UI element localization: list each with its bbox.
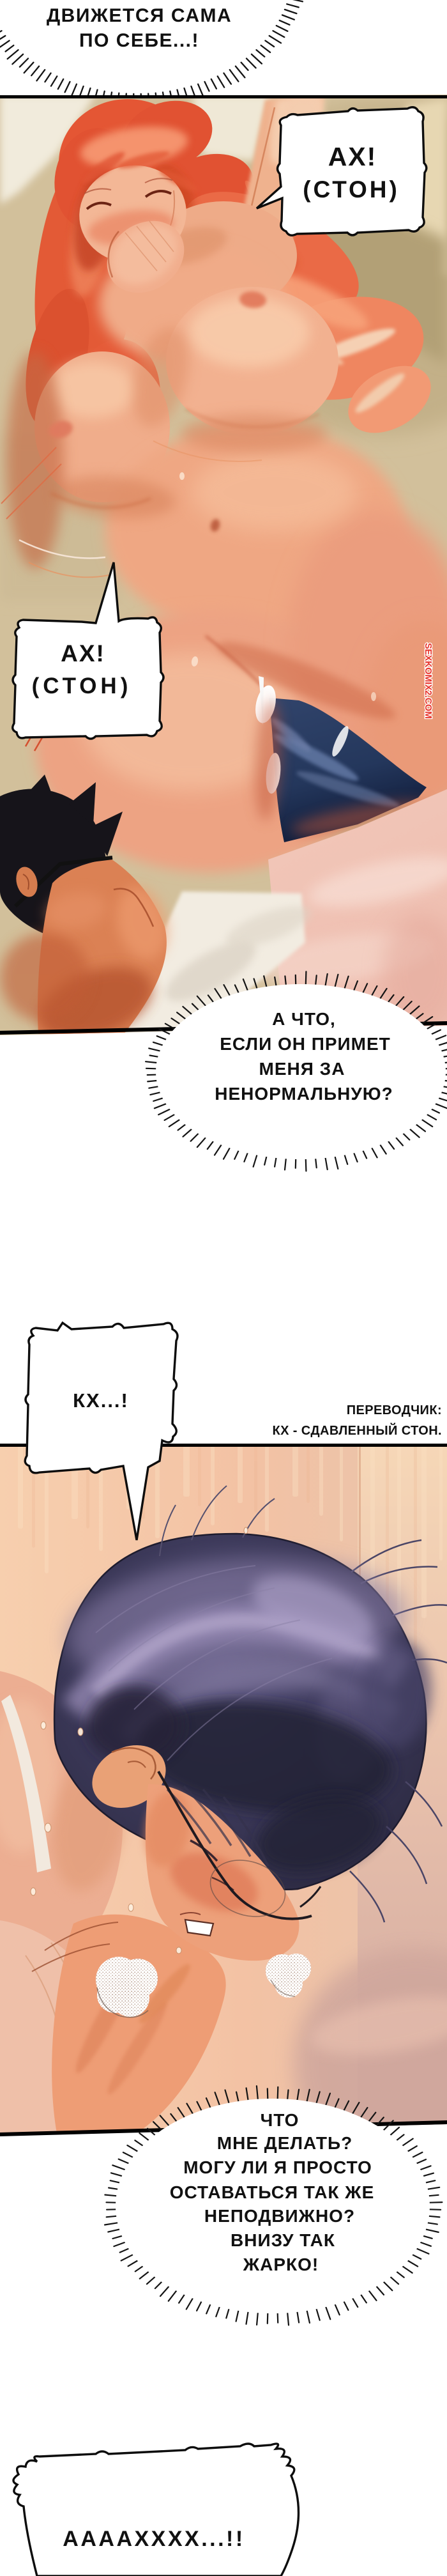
svg-text:(СТОН): (СТОН): [32, 674, 132, 698]
svg-text:А ЧТО,: А ЧТО,: [272, 1009, 336, 1029]
svg-text:НЕНОРМАЛЬНУЮ?: НЕНОРМАЛЬНУЮ?: [215, 1084, 393, 1104]
svg-text:ПО СЕБЕ...!: ПО СЕБЕ...!: [79, 30, 199, 51]
svg-text:КХ...!: КХ...!: [73, 1389, 129, 1412]
svg-text:МЕНЯ ЗА: МЕНЯ ЗА: [259, 1059, 345, 1079]
svg-text:АХ!: АХ!: [61, 640, 105, 667]
svg-text:ВНИЗУ ТАК: ВНИЗУ ТАК: [231, 2230, 335, 2250]
svg-text:SEXKOMIX2.COM: SEXKOMIX2.COM: [423, 643, 433, 719]
svg-text:(СТОН): (СТОН): [303, 176, 400, 203]
svg-text:АААAXXXX...!!: АААAXXXX...!!: [63, 2527, 245, 2551]
svg-text:КХ - СДАВЛЕННЫЙ СТОН.: КХ - СДАВЛЕННЫЙ СТОН.: [272, 1423, 442, 1438]
svg-text:ЧТО: ЧТО: [261, 2110, 299, 2130]
svg-text:ЕСЛИ ОН ПРИМЕТ: ЕСЛИ ОН ПРИМЕТ: [220, 1034, 391, 1054]
svg-text:ПЕРЕВОДЧИК:: ПЕРЕВОДЧИК:: [347, 1403, 442, 1417]
svg-text:ДВИЖЕТСЯ САМА: ДВИЖЕТСЯ САМА: [47, 5, 232, 26]
svg-text:ЖАРКО!: ЖАРКО!: [243, 2255, 319, 2274]
svg-text:МОГУ ЛИ Я ПРОСТО: МОГУ ЛИ Я ПРОСТО: [183, 2157, 372, 2177]
svg-text:НЕПОДВИЖНО?: НЕПОДВИЖНО?: [204, 2206, 355, 2226]
svg-text:АХ!: АХ!: [328, 142, 377, 171]
svg-text:ОСТАВАТЬСЯ ТАК ЖЕ: ОСТАВАТЬСЯ ТАК ЖЕ: [170, 2182, 375, 2202]
svg-text:МНЕ ДЕЛАТЬ?: МНЕ ДЕЛАТЬ?: [217, 2133, 352, 2153]
